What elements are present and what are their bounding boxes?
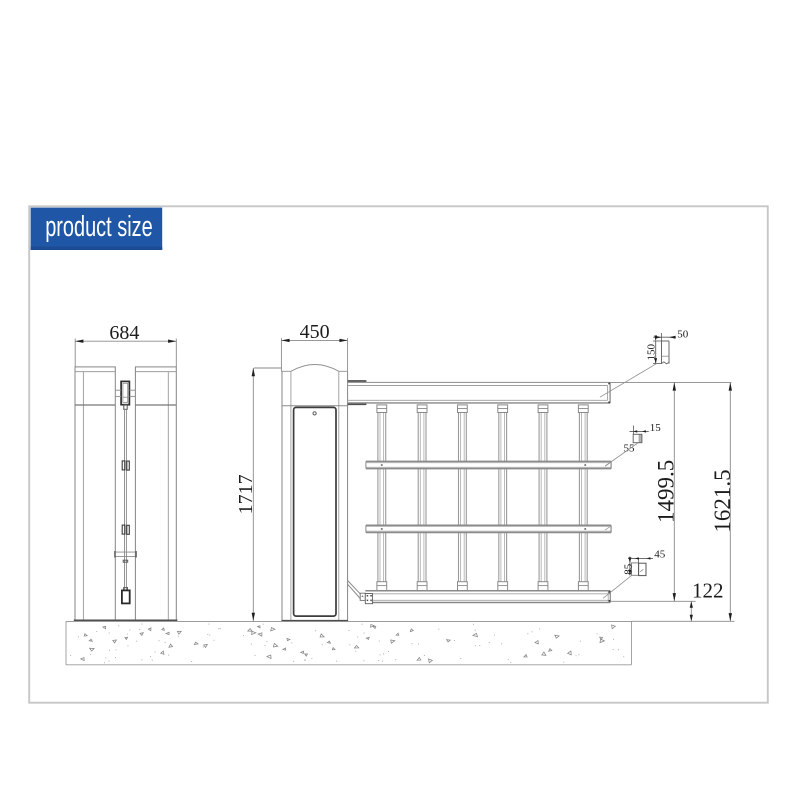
svg-text:product size: product size	[45, 212, 152, 243]
svg-text:684: 684	[109, 322, 139, 344]
svg-text:15: 15	[650, 422, 662, 434]
svg-text:1499.5: 1499.5	[654, 460, 679, 523]
svg-text:1621.5: 1621.5	[710, 469, 735, 532]
svg-text:50: 50	[677, 328, 689, 340]
svg-text:1717: 1717	[235, 474, 257, 514]
svg-text:55: 55	[624, 442, 636, 454]
svg-text:122: 122	[692, 579, 724, 603]
svg-text:85: 85	[622, 563, 634, 575]
svg-text:150: 150	[645, 344, 657, 361]
svg-text:45: 45	[654, 548, 666, 560]
svg-text:450: 450	[300, 321, 330, 343]
